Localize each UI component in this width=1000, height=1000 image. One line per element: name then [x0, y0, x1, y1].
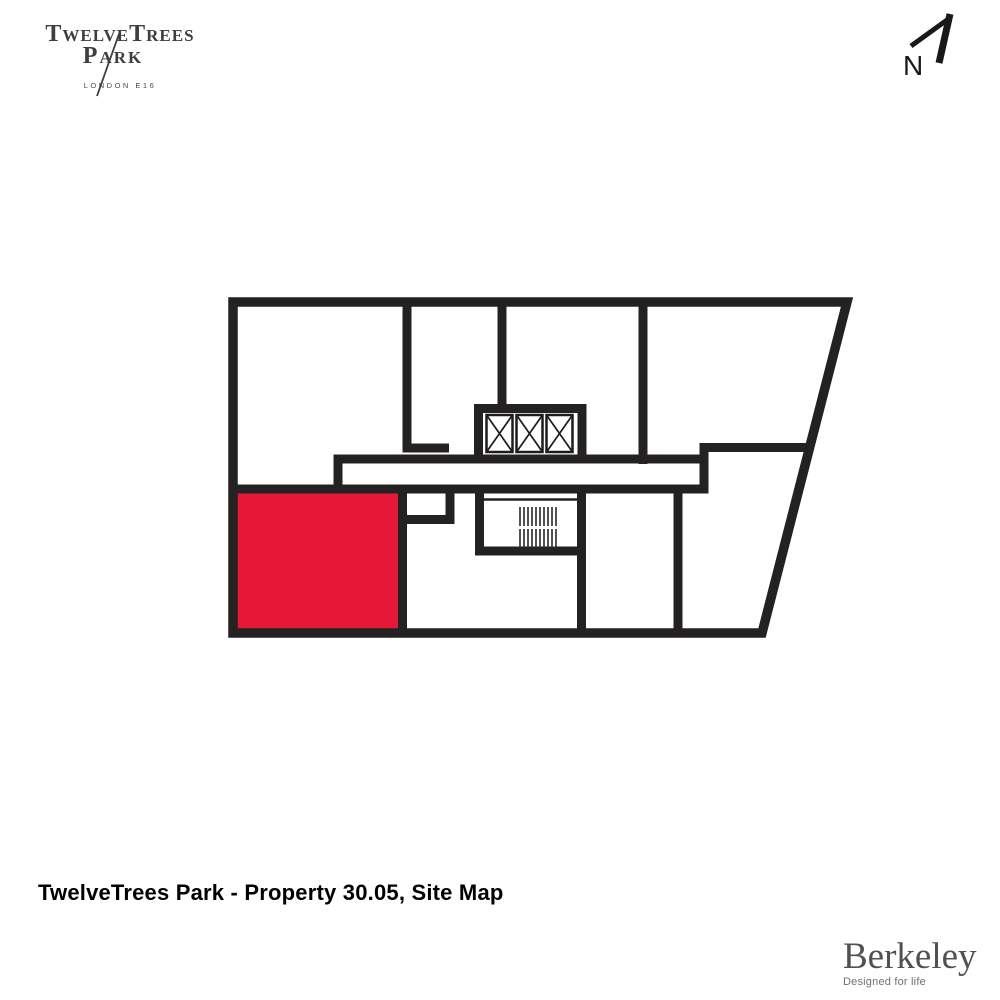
developer-name: Berkeley: [843, 938, 993, 976]
lift-bank: [479, 409, 583, 460]
stair-treads: [520, 507, 556, 547]
site-plan: [0, 0, 1000, 1000]
page-title: TwelveTrees Park - Property 30.05, Site …: [38, 880, 504, 906]
site-map-page: { "brand": { "name_caps": "TwelveTrees",…: [0, 0, 1000, 1000]
highlighted-unit: [238, 494, 399, 629]
developer-tagline: Designed for life: [843, 976, 993, 988]
lift-icon: [517, 415, 543, 452]
berkeley-logo: Berkeley Designed for life: [843, 938, 993, 988]
lift-icon: [487, 415, 513, 452]
lift-icon: [547, 415, 573, 452]
stairs: [475, 485, 586, 638]
